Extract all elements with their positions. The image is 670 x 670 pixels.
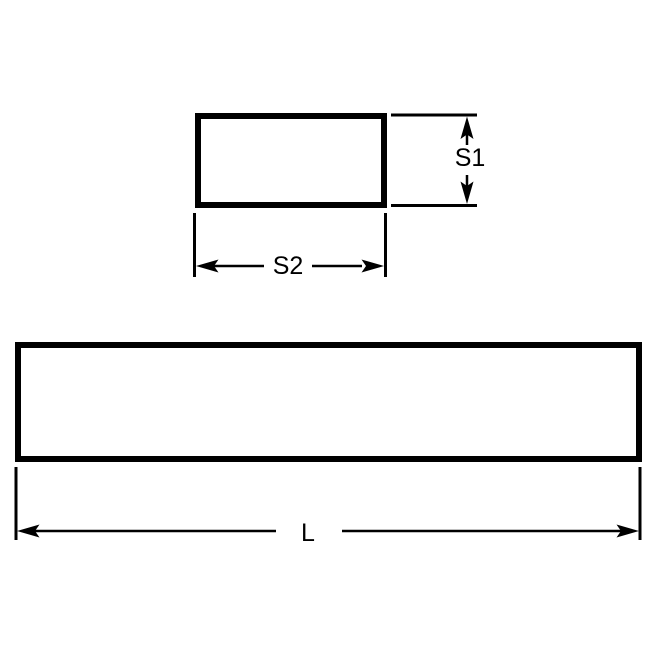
- cross-section-rectangle: [198, 116, 384, 205]
- cross-section-view: S1 S2: [195, 115, 486, 280]
- keystock-dimension-drawing: S1 S2: [0, 0, 670, 670]
- s2-dimension: S2: [195, 213, 386, 280]
- l-dimension: L: [16, 467, 640, 547]
- arrow-right-icon: [362, 260, 385, 273]
- technical-drawing-canvas: S1 S2: [0, 0, 670, 670]
- s2-label: S2: [273, 252, 304, 280]
- side-view-rectangle: [18, 345, 639, 459]
- l-label: L: [301, 519, 315, 547]
- s1-label: S1: [455, 144, 486, 172]
- side-view: L: [16, 345, 640, 547]
- s1-dimension: S1: [391, 115, 485, 206]
